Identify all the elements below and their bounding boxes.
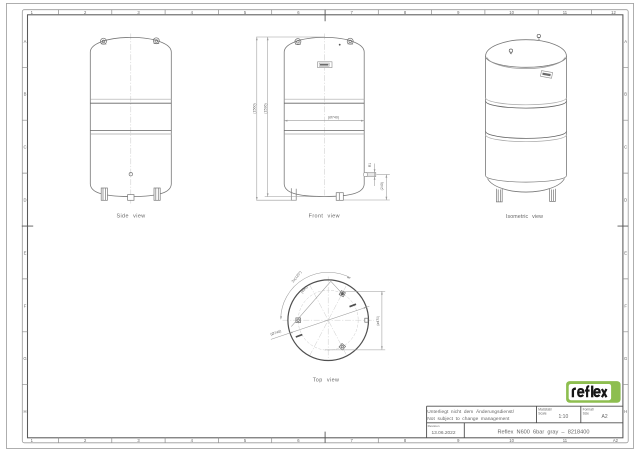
svg-text:Isometric view: Isometric view xyxy=(506,214,543,220)
svg-text:10: 10 xyxy=(509,10,514,15)
svg-text:(240): (240) xyxy=(380,182,384,190)
svg-text:Side view: Side view xyxy=(116,213,145,219)
svg-text:10: 10 xyxy=(509,438,514,443)
svg-text:E: E xyxy=(24,250,27,255)
svg-text:(ø470): (ø470) xyxy=(376,316,380,326)
svg-text:Revision: Revision xyxy=(428,424,440,428)
svg-text:11: 11 xyxy=(563,438,568,443)
svg-text:G: G xyxy=(624,356,627,361)
svg-text:G: G xyxy=(23,356,26,361)
svg-text:A2: A2 xyxy=(613,438,619,443)
svg-text:Reflex N600 6bar gray – 821840: Reflex N600 6bar gray – 8218400 xyxy=(498,430,590,436)
svg-text:A2: A2 xyxy=(602,414,608,420)
svg-text:Top view: Top view xyxy=(313,378,340,384)
svg-text:F: F xyxy=(24,303,27,308)
svg-text:B: B xyxy=(24,92,27,97)
svg-text:1:10: 1:10 xyxy=(559,414,569,420)
svg-text:(1536): (1536) xyxy=(264,103,268,113)
svg-text:13.06.2022: 13.06.2022 xyxy=(432,430,456,436)
svg-text:D: D xyxy=(624,198,627,203)
svg-text:F: F xyxy=(624,303,627,308)
svg-text:C: C xyxy=(624,145,627,150)
svg-text:Size: Size xyxy=(583,412,590,416)
svg-text:(Ø740): (Ø740) xyxy=(328,115,339,119)
svg-text:A: A xyxy=(24,39,27,44)
svg-text:A: A xyxy=(624,39,627,44)
svg-text:Scale: Scale xyxy=(538,412,546,416)
svg-text:12: 12 xyxy=(611,10,616,15)
svg-text:Unterliegt nicht dem Änderungs: Unterliegt nicht dem Änderungsdienst/ xyxy=(427,408,514,415)
svg-text:R1: R1 xyxy=(368,163,372,167)
svg-text:C: C xyxy=(23,145,26,150)
svg-text:E: E xyxy=(624,250,627,255)
svg-text:B: B xyxy=(624,92,627,97)
svg-text:D: D xyxy=(23,198,26,203)
svg-text:Not subject to change manageme: Not subject to change management xyxy=(427,416,510,422)
svg-text:(1560): (1560) xyxy=(253,103,257,113)
svg-text:Front view: Front view xyxy=(309,213,340,219)
svg-text:H: H xyxy=(624,409,627,414)
svg-text:H: H xyxy=(23,409,26,414)
svg-text:11: 11 xyxy=(563,10,568,15)
